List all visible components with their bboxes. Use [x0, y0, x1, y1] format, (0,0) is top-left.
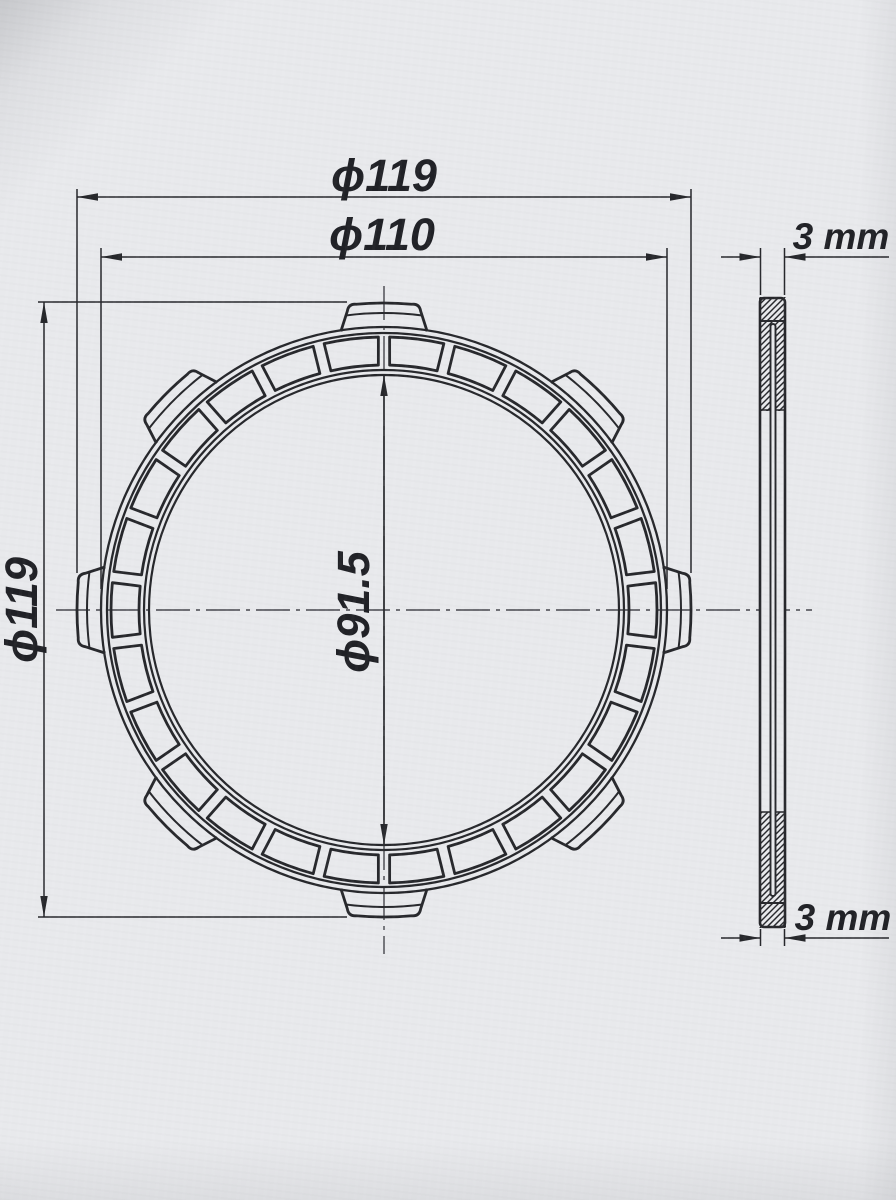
dim-label-inner-diameter: ϕ91.5	[328, 550, 379, 673]
drawing-sheet: ϕ119 ϕ110 ϕ91.5 ϕ119 3 mm 3 mm	[0, 0, 896, 1200]
dim-label-overall-diameter-top: ϕ119	[331, 150, 437, 201]
drawing-canvas: ϕ119 ϕ110 ϕ91.5 ϕ119 3 mm 3 mm	[0, 0, 896, 1200]
centerlines	[56, 286, 812, 954]
dim-label-thickness-bottom: 3 mm	[795, 897, 892, 938]
dim-label-friction-ring-od: ϕ110	[329, 209, 435, 260]
dim-label-overall-diameter-left: ϕ119	[0, 557, 47, 663]
dim-label-thickness-top: 3 mm	[793, 216, 890, 257]
